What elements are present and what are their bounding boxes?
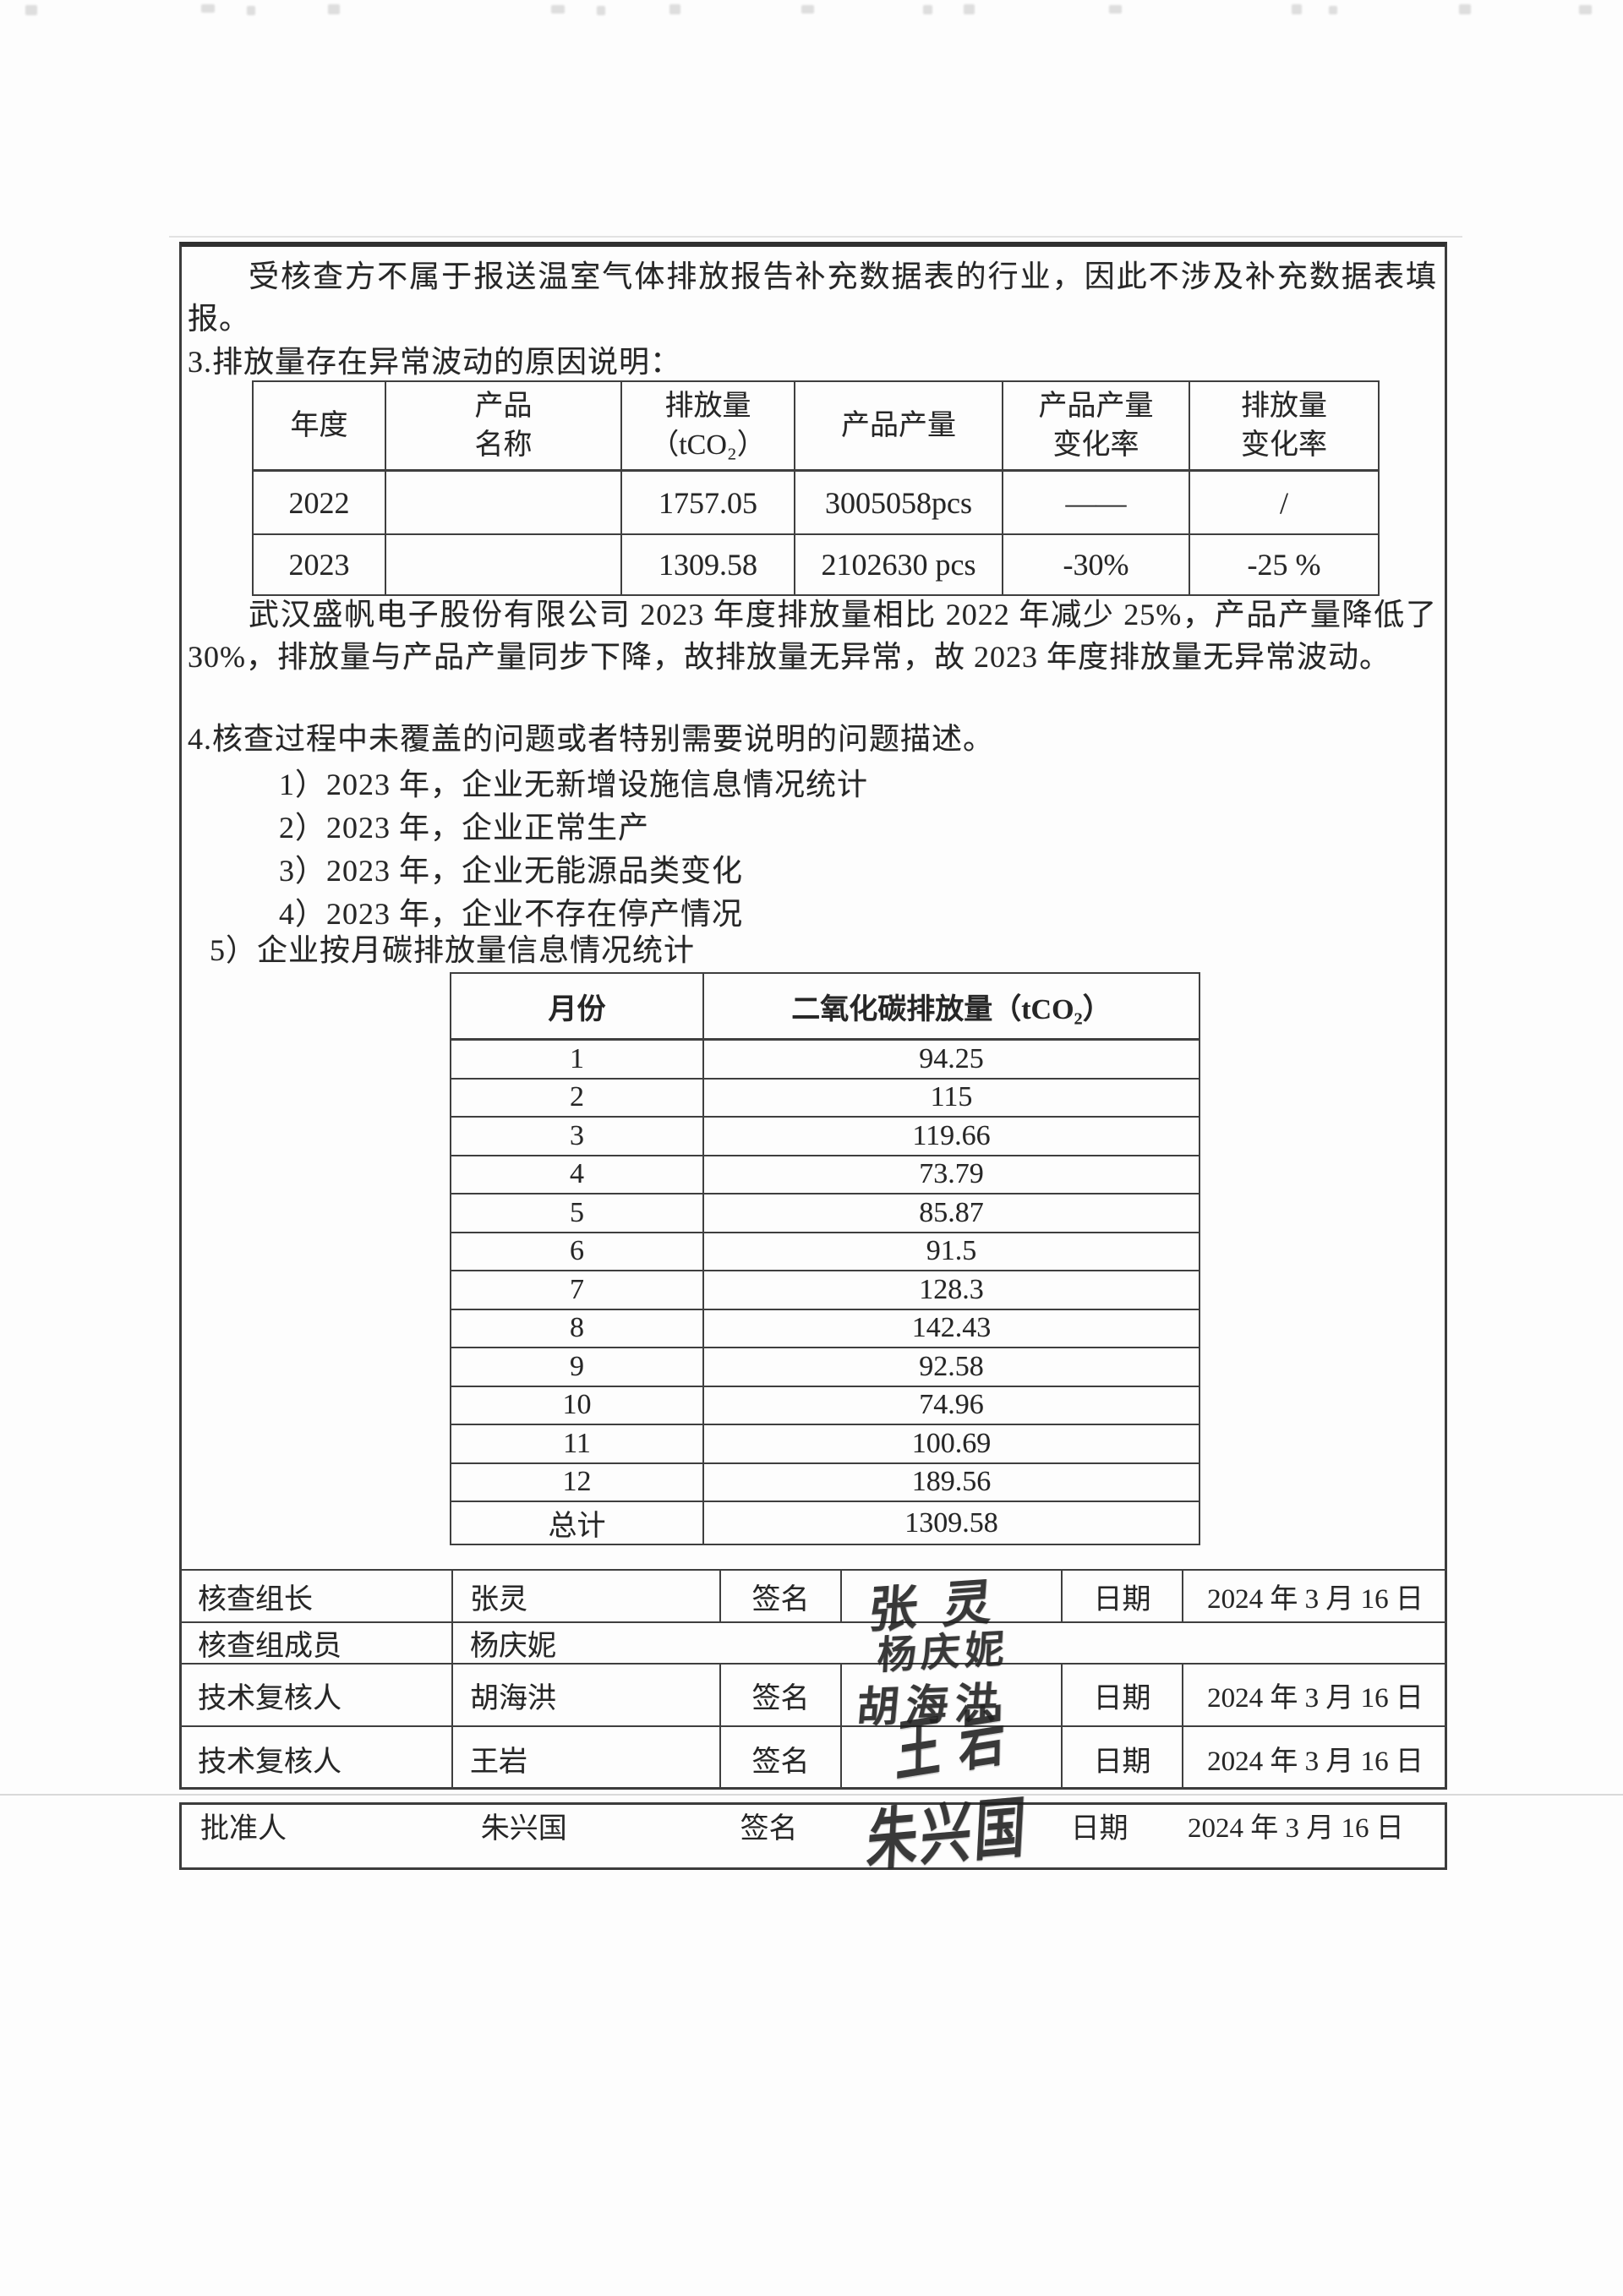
signature-row-team-member: 核查组成员 杨庆妮 [179, 1621, 1447, 1663]
scan-artifact [328, 4, 340, 14]
intro-paragraph: 受核查方不属于报送温室气体排放报告补充数据表的行业，因此不涉及补充数据表填报。 [188, 255, 1437, 340]
total-value-cell: 1309.58 [703, 1501, 1199, 1544]
value-cell: 128.3 [703, 1271, 1199, 1309]
col-header-year: 年度 [253, 381, 385, 471]
month-cell: 11 [451, 1424, 703, 1463]
col-header-emission: 排放量 （tCO₂） [621, 381, 795, 471]
scan-artifact [669, 4, 680, 14]
person-name: 王岩 [451, 1727, 719, 1790]
month-cell: 1 [451, 1040, 703, 1079]
role-label: 技术复核人 [179, 1665, 451, 1725]
month-cell: 10 [451, 1386, 703, 1425]
col-header-output: 产品产量 [795, 381, 1003, 471]
value-cell: 94.25 [703, 1040, 1199, 1079]
section5-heading: 5）企业按月碳排放量信息情况统计 [210, 930, 695, 970]
year-cell: 2023 [253, 534, 385, 595]
output-cell: 2102630 pcs [795, 534, 1003, 595]
value-cell: 85.87 [703, 1194, 1199, 1233]
value-cell: 92.58 [703, 1348, 1199, 1386]
analysis-paragraph: 武汉盛帆电子股份有限公司 2023 年度排放量相比 2022 年减少 25%，产… [188, 593, 1437, 678]
scan-artifact [1109, 5, 1122, 14]
value-cell: 189.56 [703, 1463, 1199, 1502]
col-header-emission-change: 排放量 变化率 [1189, 381, 1379, 471]
date-value: 2024 年 3 月 16 日 [1182, 1665, 1447, 1725]
month-cell: 4 [451, 1156, 703, 1194]
date-value: 2024 年 3 月 16 日 [1182, 1727, 1447, 1790]
scan-artifact [1579, 5, 1592, 14]
monthly-row: 3119.66 [451, 1117, 1199, 1156]
scan-artifact [923, 5, 932, 14]
month-cell: 3 [451, 1117, 703, 1156]
month-cell: 8 [451, 1309, 703, 1348]
scan-artifact [0, 1794, 1623, 1796]
monthly-row: 473.79 [451, 1156, 1199, 1194]
monthly-row: 7128.3 [451, 1271, 1199, 1309]
date-label: 日期 [1061, 1727, 1182, 1790]
month-cell: 5 [451, 1194, 703, 1233]
monthly-row: 1074.96 [451, 1386, 1199, 1425]
signature-row-technical-reviewer-1: 技术复核人 胡海洪 签名 日期 2024 年 3 月 16 日 [179, 1663, 1447, 1725]
section4-heading: 4.核查过程中未覆盖的问题或者特别需要说明的问题描述。 [188, 719, 994, 759]
monthly-row: 2115 [451, 1079, 1199, 1118]
col-header-output-change: 产品产量 变化率 [1003, 381, 1189, 471]
date-label: 日期 [1061, 1665, 1182, 1725]
value-cell: 142.43 [703, 1309, 1199, 1348]
output-change-cell: —— [1003, 471, 1189, 535]
product-cell [385, 471, 621, 535]
scan-artifact [551, 5, 565, 14]
value-cell: 100.69 [703, 1424, 1199, 1463]
col-header-product-name: 产品 名称 [385, 381, 621, 471]
fluctuation-table: 年度 产品 名称 排放量 （tCO₂） 产品产量 产品产量 变化率 排放量 变化… [252, 380, 1380, 596]
value-cell: 74.96 [703, 1386, 1199, 1425]
month-cell: 9 [451, 1348, 703, 1386]
scan-artifact [801, 5, 814, 14]
scan-artifact [964, 4, 975, 14]
handwritten-signature-zhuxingguo: 朱兴国 [865, 1774, 1031, 1884]
role-label: 批准人 [182, 1805, 464, 1867]
sign-label: 签名 [740, 1805, 857, 1867]
role-label: 核查组成员 [179, 1623, 451, 1663]
product-cell [385, 534, 621, 595]
month-cell: 6 [451, 1233, 703, 1271]
value-cell: 119.66 [703, 1117, 1199, 1156]
date-value: 2024 年 3 月 16 日 [1188, 1805, 1445, 1867]
emission-change-cell: -25 % [1189, 534, 1379, 595]
date-label: 日期 [1071, 1805, 1188, 1867]
section3-heading: 3.排放量存在异常波动的原因说明： [188, 342, 681, 382]
value-cell: 91.5 [703, 1233, 1199, 1271]
monthly-row: 691.5 [451, 1233, 1199, 1271]
monthly-row: 194.25 [451, 1040, 1199, 1079]
emission-cell: 1757.05 [621, 471, 795, 535]
date-label: 日期 [1061, 1571, 1182, 1621]
scan-artifact [169, 236, 1462, 238]
scan-artifact [247, 6, 255, 15]
person-name: 张灵 [451, 1571, 719, 1621]
monthly-emission-table: 月份 二氧化碳排放量（tCO₂） 194.25 2115 3119.66 473… [450, 972, 1200, 1545]
note-item-3: 3）2023 年，企业无能源品类变化 [279, 850, 868, 893]
year-cell: 2022 [253, 471, 385, 535]
monthly-row: 8142.43 [451, 1309, 1199, 1348]
sign-label: 签名 [719, 1571, 840, 1621]
person-name: 胡海洪 [451, 1665, 719, 1725]
fluctuation-table-header-row: 年度 产品 名称 排放量 （tCO₂） 产品产量 产品产量 变化率 排放量 变化… [253, 381, 1379, 471]
scan-artifact [1329, 6, 1337, 14]
month-header: 月份 [451, 973, 703, 1040]
note-item-2: 2）2023 年，企业正常生产 [279, 806, 868, 850]
table-row-2023: 2023 1309.58 2102630 pcs -30% -25 % [253, 534, 1379, 595]
note-item-1: 1）2023 年，企业无新增设施信息情况统计 [279, 763, 868, 806]
signature-field [719, 1623, 1447, 1663]
role-label: 核查组长 [179, 1571, 451, 1621]
month-cell: 7 [451, 1271, 703, 1309]
output-cell: 3005058pcs [795, 471, 1003, 535]
section4-note-list: 1）2023 年，企业无新增设施信息情况统计 2）2023 年，企业正常生产 3… [279, 763, 868, 936]
person-name: 杨庆妮 [451, 1623, 719, 1663]
scanned-report-page: 受核查方不属于报送温室气体排放报告补充数据表的行业，因此不涉及补充数据表填报。 … [0, 0, 1623, 2296]
emission-header: 二氧化碳排放量（tCO₂） [703, 973, 1199, 1040]
scan-artifact [597, 6, 605, 15]
date-value: 2024 年 3 月 16 日 [1182, 1571, 1447, 1621]
monthly-table-header-row: 月份 二氧化碳排放量（tCO₂） [451, 973, 1199, 1040]
scan-artifact [201, 4, 215, 13]
scan-artifact [1459, 4, 1471, 14]
scan-artifact [1292, 4, 1302, 14]
monthly-row: 992.58 [451, 1348, 1199, 1386]
monthly-total-row: 总计1309.58 [451, 1501, 1199, 1544]
sign-label: 签名 [719, 1665, 840, 1725]
monthly-row: 585.87 [451, 1194, 1199, 1233]
signature-row-technical-reviewer-2: 技术复核人 王岩 签名 日期 2024 年 3 月 16 日 [179, 1725, 1447, 1790]
output-change-cell: -30% [1003, 534, 1189, 595]
signature-row-team-leader: 核查组长 张灵 签名 日期 2024 年 3 月 16 日 [179, 1569, 1447, 1621]
signature-row-approver: 批准人 朱兴国 签名 日期 2024 年 3 月 16 日 [179, 1802, 1447, 1870]
monthly-row: 11100.69 [451, 1424, 1199, 1463]
total-label-cell: 总计 [451, 1501, 703, 1544]
emission-cell: 1309.58 [621, 534, 795, 595]
value-cell: 73.79 [703, 1156, 1199, 1194]
monthly-row: 12189.56 [451, 1463, 1199, 1502]
month-cell: 12 [451, 1463, 703, 1502]
sign-label: 签名 [719, 1727, 840, 1790]
month-cell: 2 [451, 1079, 703, 1118]
role-label: 技术复核人 [179, 1727, 451, 1790]
value-cell: 115 [703, 1079, 1199, 1118]
scan-artifact [25, 5, 37, 15]
table-row-2022: 2022 1757.05 3005058pcs —— / [253, 471, 1379, 535]
emission-change-cell: / [1189, 471, 1379, 535]
person-name: 朱兴国 [464, 1805, 740, 1867]
